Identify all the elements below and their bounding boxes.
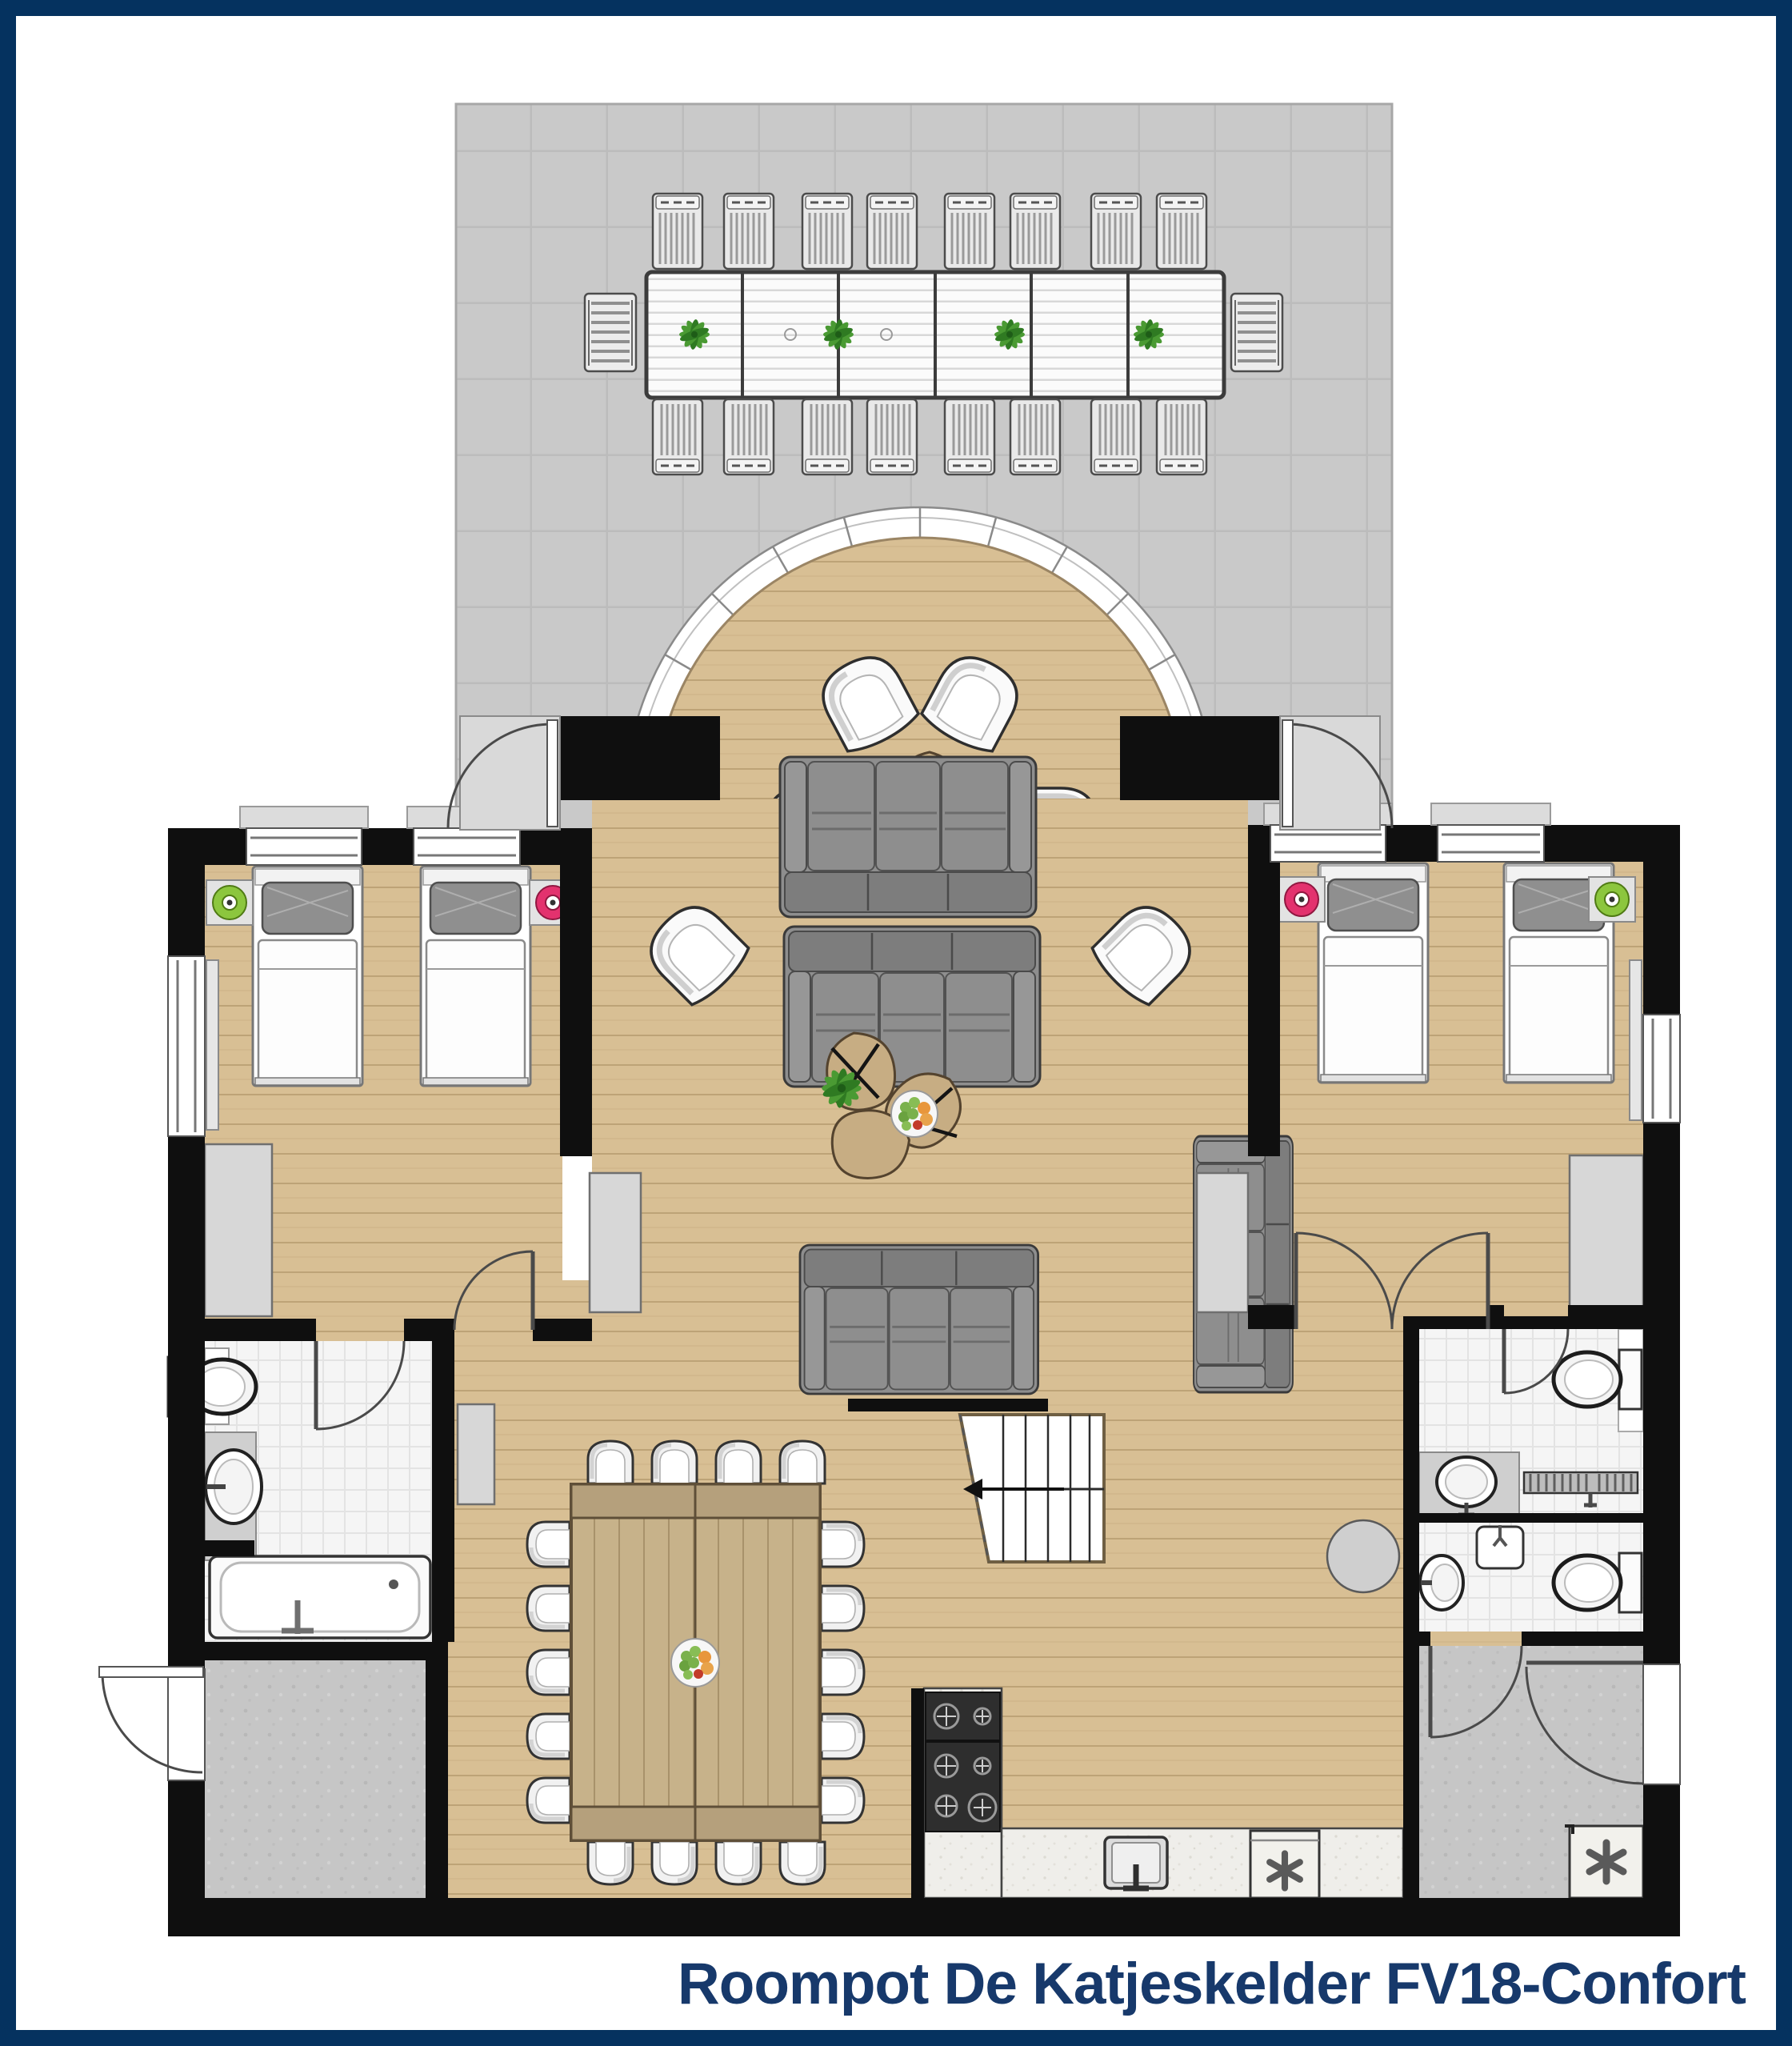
kitchen-sink xyxy=(1105,1837,1167,1890)
small-washbasin xyxy=(1420,1556,1463,1610)
door-entrance xyxy=(99,1667,205,1780)
fruit-bowl xyxy=(891,1091,938,1137)
sofa-bottom xyxy=(800,1245,1038,1394)
toilet xyxy=(1554,1553,1642,1612)
gas-hob xyxy=(926,1692,1000,1832)
single-bed xyxy=(253,867,362,1086)
sofa-facing-deck xyxy=(780,757,1036,917)
wall-bedroom-right-bottom xyxy=(1278,1305,1296,1329)
dining-table xyxy=(571,1484,820,1840)
shower-basin xyxy=(1477,1525,1523,1568)
dishwasher-appliance xyxy=(1250,1831,1319,1898)
plan-title: Roompot De Katjeskelder FV18-Confort xyxy=(678,1951,1746,2017)
hall-cabinet xyxy=(458,1404,494,1504)
window-bedroom-right xyxy=(1643,1015,1680,1123)
floorplan-drawing xyxy=(0,0,1792,2046)
wardrobe-right xyxy=(1570,1155,1643,1315)
terrace-bench-right xyxy=(1231,294,1282,371)
outdoor-dining-table xyxy=(646,272,1224,398)
tub-partition-wall xyxy=(205,1540,254,1556)
toilet xyxy=(1554,1350,1642,1409)
dining-area xyxy=(527,1441,864,1884)
round-side-table xyxy=(1327,1520,1399,1592)
window-bedroom-left xyxy=(168,956,205,1136)
floorplan-page: Roompot De Katjeskelder FV18-Confort xyxy=(0,0,1792,2046)
wall-bedroom-left-bottom xyxy=(205,1319,316,1341)
door-terrace-right xyxy=(1280,716,1392,830)
sofa-facing-room xyxy=(784,927,1040,1087)
door-terrace-left xyxy=(448,716,560,830)
nightstand-pink xyxy=(1278,877,1325,922)
terrace-bench-left xyxy=(585,294,636,371)
wall-living-right xyxy=(1248,860,1280,1156)
wall-hall-right xyxy=(426,1660,448,1898)
sideboard-right xyxy=(1197,1173,1248,1312)
wardrobe-left xyxy=(205,1144,272,1316)
wall-bathrooms-right xyxy=(1403,1316,1419,1898)
radiator xyxy=(1630,960,1642,1120)
wall-top-left-wing xyxy=(168,828,592,865)
single-bed xyxy=(1318,863,1428,1083)
entrance-hall-floor xyxy=(205,1660,426,1898)
wall-stair-stub xyxy=(848,1399,1048,1411)
fruit-bowl xyxy=(671,1639,719,1687)
nightstand-green xyxy=(206,880,253,925)
kitchen-counter xyxy=(1002,1828,1403,1898)
radiator xyxy=(206,960,218,1130)
wall-living-left xyxy=(560,860,592,1156)
drain-icon xyxy=(389,1580,398,1589)
utility-room xyxy=(1565,1826,1643,1898)
bathtub xyxy=(210,1556,430,1638)
nightstand-green xyxy=(1589,877,1635,922)
wall-bathroom-left xyxy=(432,1341,454,1642)
wall-outer-bottom xyxy=(168,1898,1680,1936)
single-bed xyxy=(421,867,530,1086)
sideboard-left xyxy=(590,1173,641,1312)
